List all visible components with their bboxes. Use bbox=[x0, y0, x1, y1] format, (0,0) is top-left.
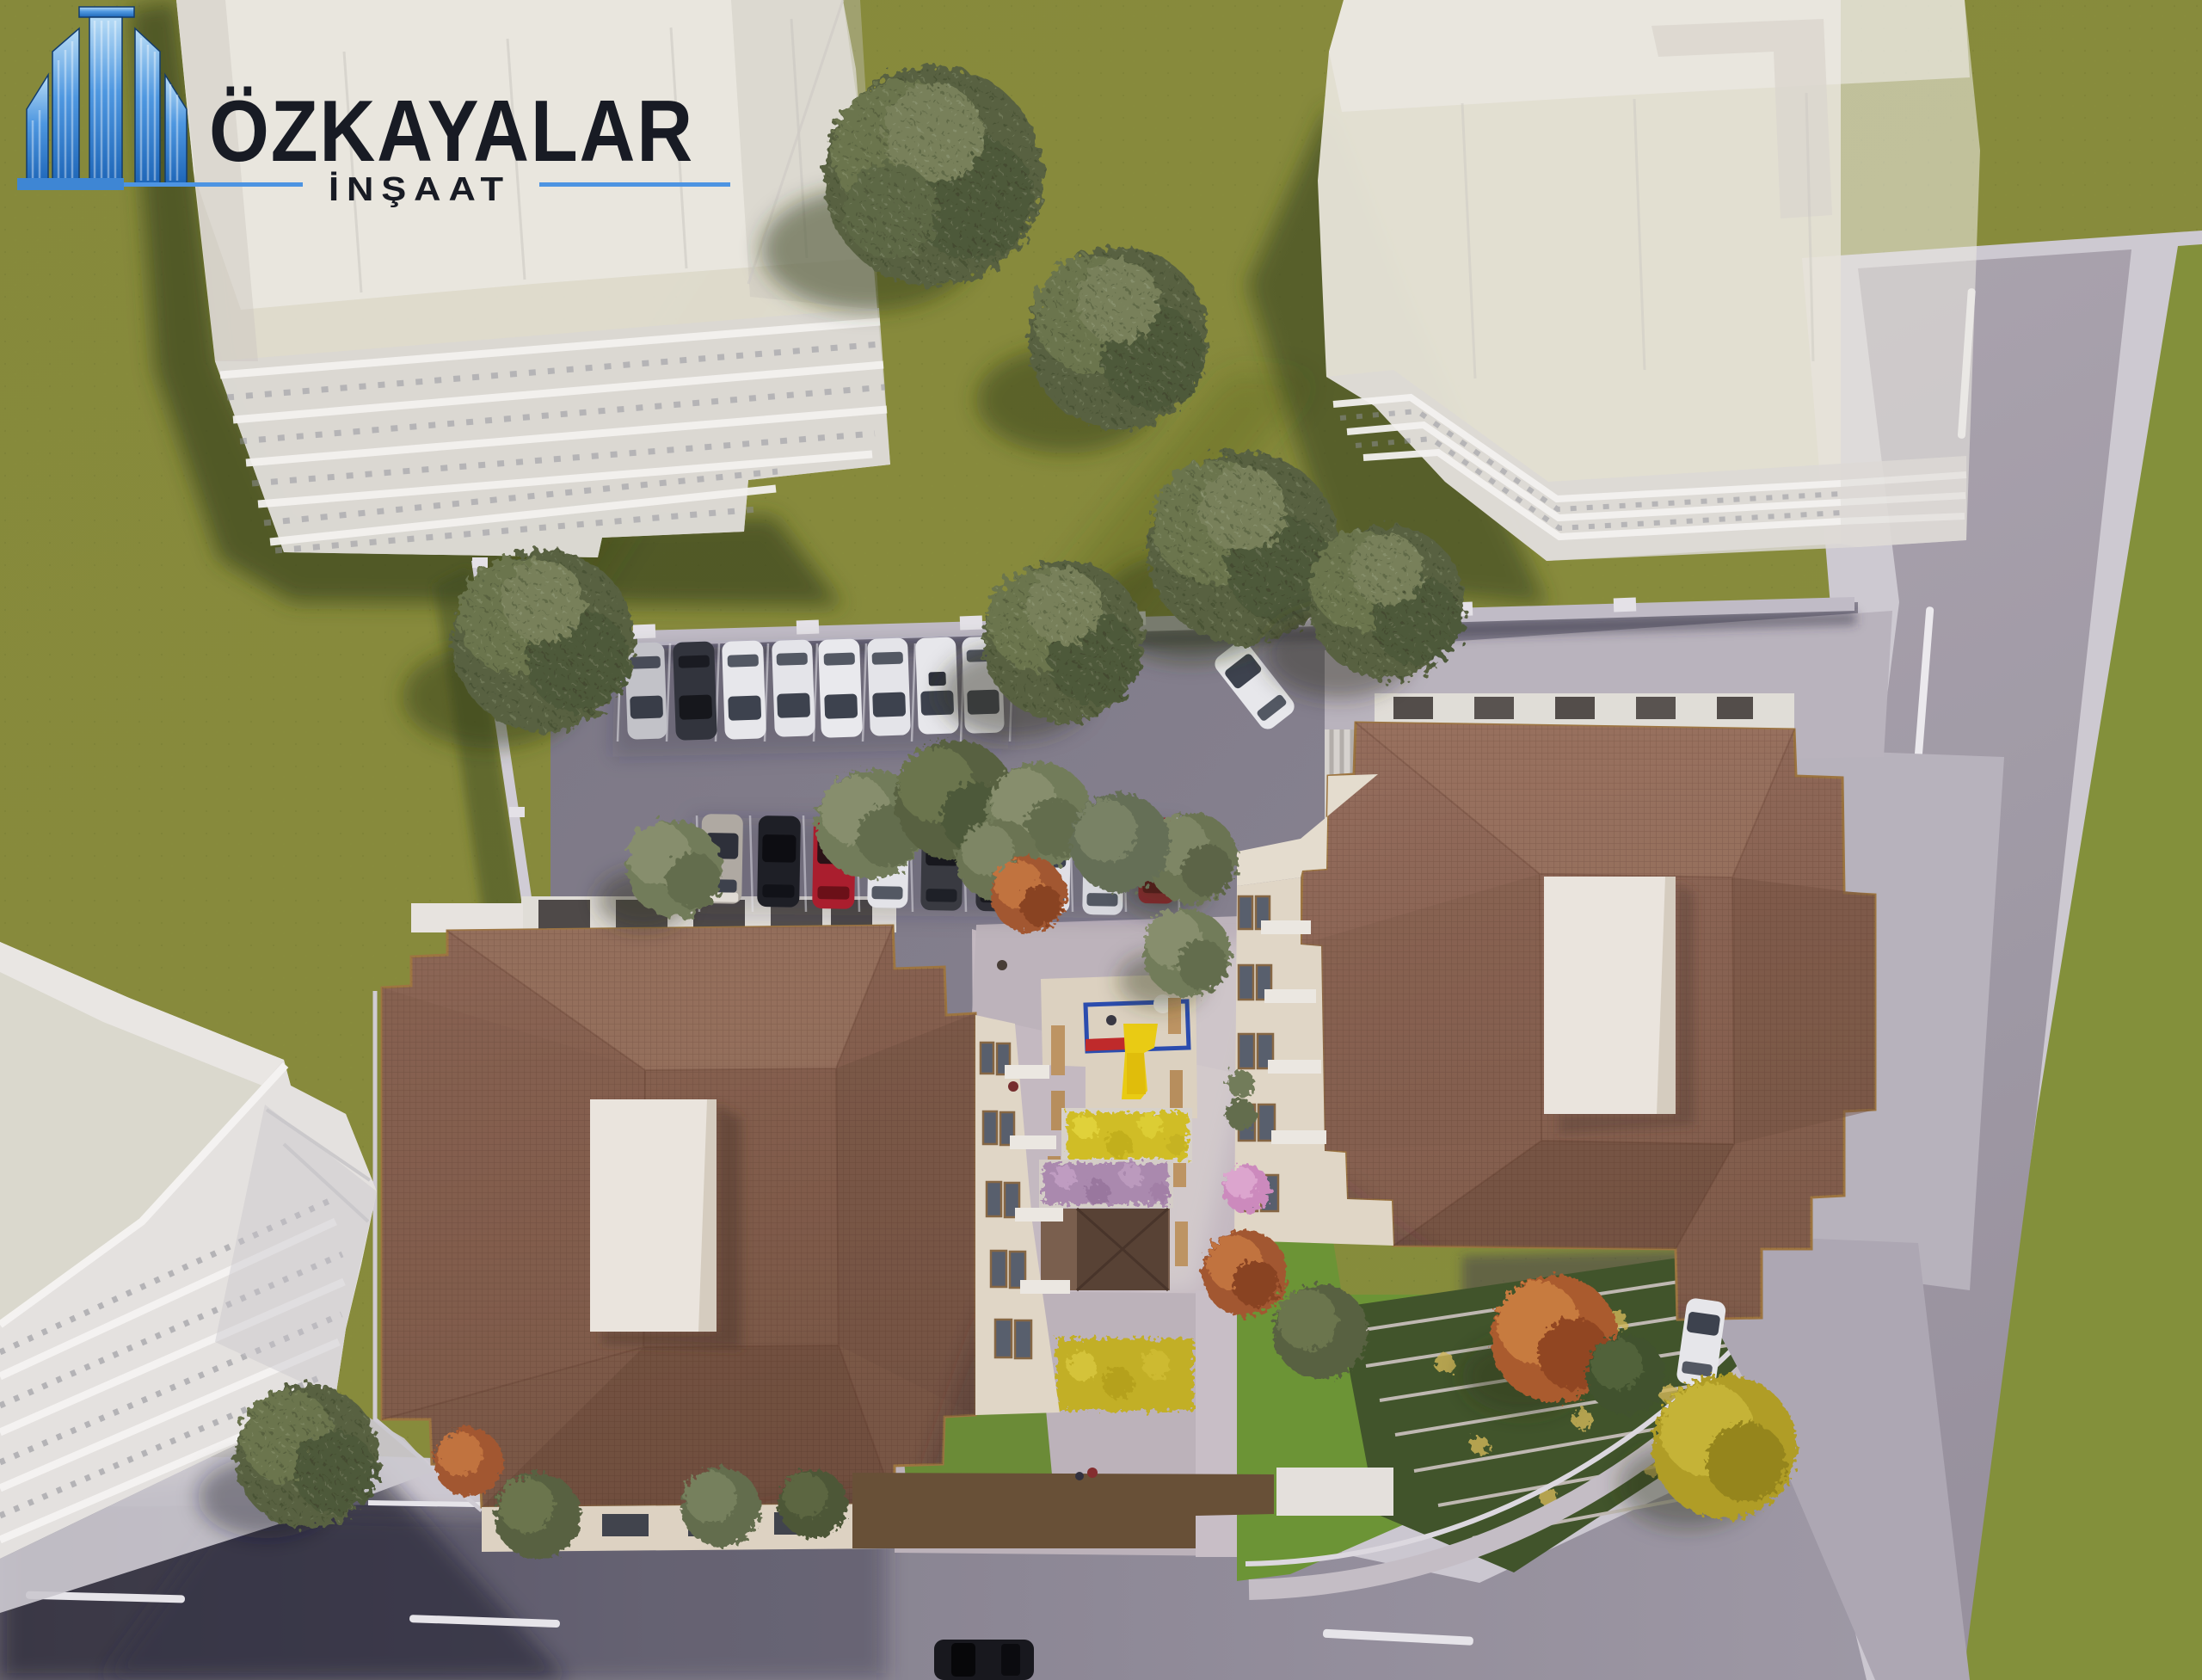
svg-text:İNŞAAT: İNŞAAT bbox=[329, 171, 511, 208]
svg-text:ÖZKAYALAR: ÖZKAYALAR bbox=[209, 83, 694, 180]
